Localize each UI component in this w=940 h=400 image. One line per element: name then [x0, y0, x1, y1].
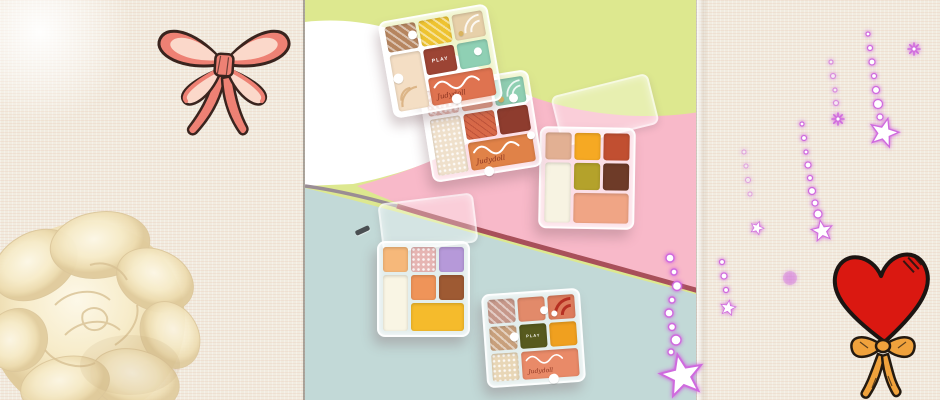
eyeshadow-pan: PLAY — [423, 45, 458, 76]
eyeshadow-pan — [497, 104, 532, 135]
eyeshadow-pan — [463, 110, 498, 141]
bow-knot — [214, 53, 233, 76]
eyeshadow-pan — [383, 275, 408, 331]
play-label: PLAY — [526, 333, 541, 340]
heart-balloon-illustration — [828, 242, 938, 400]
soft-light-glow — [0, 0, 150, 130]
heart-group — [833, 253, 931, 344]
eyeshadow-pan — [574, 133, 600, 160]
eyeshadow-pan — [573, 193, 629, 224]
eyeshadow-palette-top: PLAY Judydoll — [377, 3, 503, 119]
heart-bow-knot — [876, 340, 890, 352]
fabric-rose-illustration — [0, 205, 210, 400]
eyeshadow-pan — [411, 303, 464, 331]
eyeshadow-pan — [429, 115, 469, 176]
eyeshadow-pan — [549, 321, 578, 347]
eyeshadow-palette-open-blue — [377, 241, 470, 337]
ribbon-bow-illustration — [152, 6, 292, 146]
eyeshadow-pan — [418, 16, 453, 47]
arc-glyph — [460, 12, 483, 35]
eyeshadow-pan — [456, 39, 491, 70]
deco-dot — [526, 131, 535, 140]
eyeshadow-pan — [487, 298, 516, 324]
eyeshadow-pan — [545, 132, 571, 159]
eyeshadow-pan — [547, 294, 576, 320]
heart-bow-tail-left — [862, 354, 884, 398]
eyeshadow-pan — [411, 275, 436, 300]
eyeshadow-pan — [439, 247, 464, 272]
eyeshadow-palette-open-pink — [538, 126, 636, 230]
eyeshadow-pan: PLAY — [519, 323, 548, 349]
deco-dot — [540, 306, 549, 315]
rose-shadow — [80, 335, 180, 395]
eyeshadow-pan — [439, 275, 464, 300]
deco-dot — [510, 332, 520, 342]
eyeshadow-pan — [603, 163, 629, 190]
eyeshadow-palette-flat: PLAY Judydoll — [481, 288, 586, 389]
play-label: PLAY — [431, 55, 449, 65]
eyeshadow-pan — [451, 10, 486, 41]
eyeshadow-pan — [411, 247, 436, 272]
eyeshadow-pan — [491, 352, 520, 382]
eyeshadow-pan: Judydoll — [468, 133, 537, 171]
deco-dot — [451, 93, 463, 105]
eyeshadow-pan — [603, 133, 629, 160]
heart-bow — [851, 337, 914, 397]
eyeshadow-pan — [574, 163, 600, 190]
heart-bow-tail-right — [882, 354, 900, 396]
eyeshadow-pan — [544, 162, 571, 222]
banner: PLAY Judydoll — [0, 0, 940, 400]
arc-glyph — [397, 84, 422, 109]
deco-dot — [549, 373, 560, 384]
squiggle-decoration — [525, 352, 566, 367]
product-photo: PLAY Judydoll — [303, 0, 697, 400]
eyeshadow-pan — [383, 247, 408, 272]
panel-seam — [697, 0, 709, 400]
